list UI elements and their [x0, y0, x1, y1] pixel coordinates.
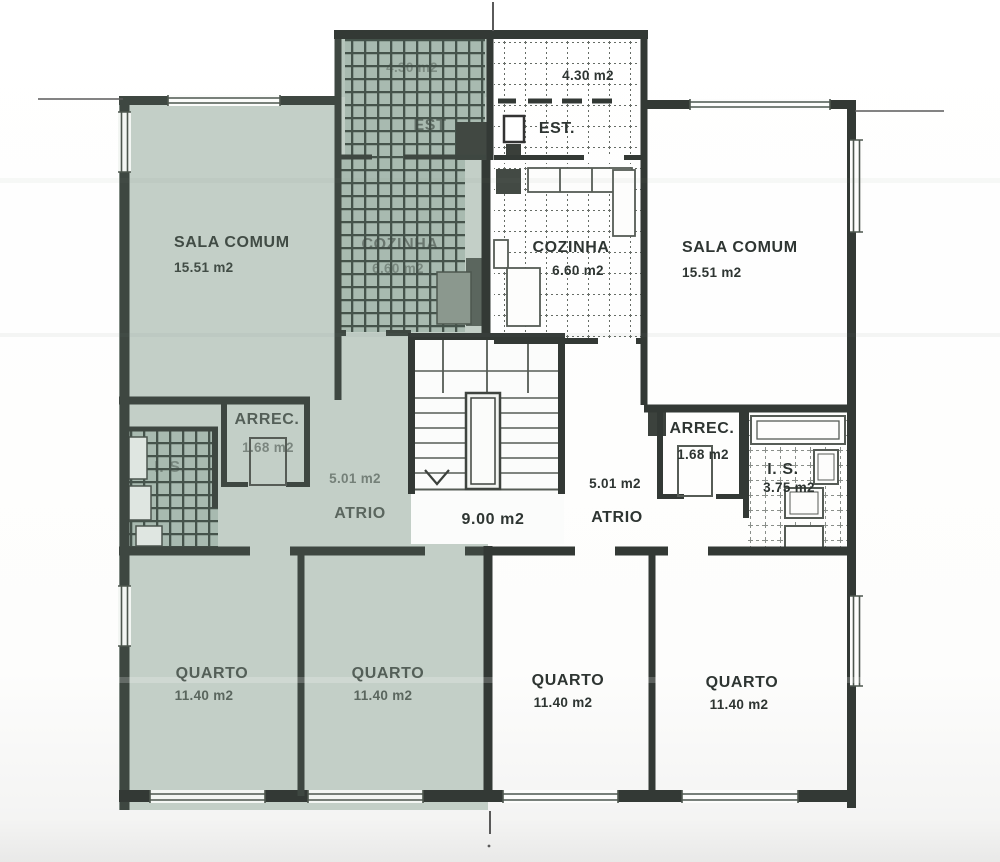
- room-area: 3.75 m2: [763, 480, 815, 495]
- room-name: QUARTO: [532, 672, 605, 689]
- room-area: 11.40 m2: [354, 688, 413, 703]
- window: [168, 95, 280, 106]
- window: [118, 586, 131, 646]
- room-area: 15.51 m2: [682, 265, 741, 280]
- window: [150, 790, 265, 803]
- room-name: QUARTO: [706, 674, 779, 691]
- room-name: QUARTO: [352, 665, 425, 682]
- room-area: 5.01 m2: [329, 471, 381, 486]
- stove-symbol: [507, 268, 540, 326]
- room-area: 6.60 m2: [552, 263, 604, 278]
- bathtub-symbol: [751, 416, 845, 444]
- window: [850, 140, 863, 232]
- room-area: 1.68 m2: [242, 440, 294, 455]
- room-area: 4.30 m2: [386, 60, 438, 75]
- room-name: SALA COMUM: [682, 239, 798, 256]
- room-area: 1.68 m2: [677, 447, 729, 462]
- window: [118, 112, 131, 172]
- room-name: QUARTO: [176, 665, 249, 682]
- window: [690, 99, 830, 110]
- room-name: ATRIO: [334, 505, 386, 522]
- room-name: EST: [414, 117, 447, 134]
- room-name: COZINHA: [532, 239, 609, 256]
- room-area: 6.60 m2: [372, 261, 424, 276]
- room-name: ARREC.: [235, 411, 300, 428]
- right-est-fixtures: [504, 116, 524, 157]
- room-area: 15.51 m2: [174, 260, 233, 275]
- window: [308, 790, 423, 803]
- floor-plan-canvas: 4.30 m2 EST 4.30 m2 EST. SALA COMUM 15.5…: [0, 0, 1000, 862]
- window: [503, 790, 618, 803]
- room-name: I. S.: [154, 459, 185, 476]
- room-area: 4.30 m2: [562, 68, 614, 83]
- room-name: ATRIO: [591, 509, 643, 526]
- room-area: 5.01 m2: [589, 476, 641, 491]
- room-name: ARREC.: [670, 420, 735, 437]
- water-heater-icon: [504, 116, 524, 142]
- scanned-floor-plan-page: 4.30 m2 EST 4.30 m2 EST. SALA COMUM 15.5…: [0, 0, 1000, 862]
- room-area: 11.40 m2: [534, 695, 593, 710]
- room-area: 11.40 m2: [175, 688, 234, 703]
- left-kitchen-counter: [437, 272, 471, 324]
- room-name: COZINHA: [361, 236, 438, 253]
- stairwell-area: 9.00 m2: [462, 511, 525, 528]
- window: [682, 790, 798, 803]
- room-area: 11.40 m2: [710, 697, 769, 712]
- window: [850, 596, 863, 686]
- room-name: I. S.: [767, 461, 798, 478]
- room-name: SALA COMUM: [174, 234, 290, 251]
- room-name: EST.: [539, 120, 575, 137]
